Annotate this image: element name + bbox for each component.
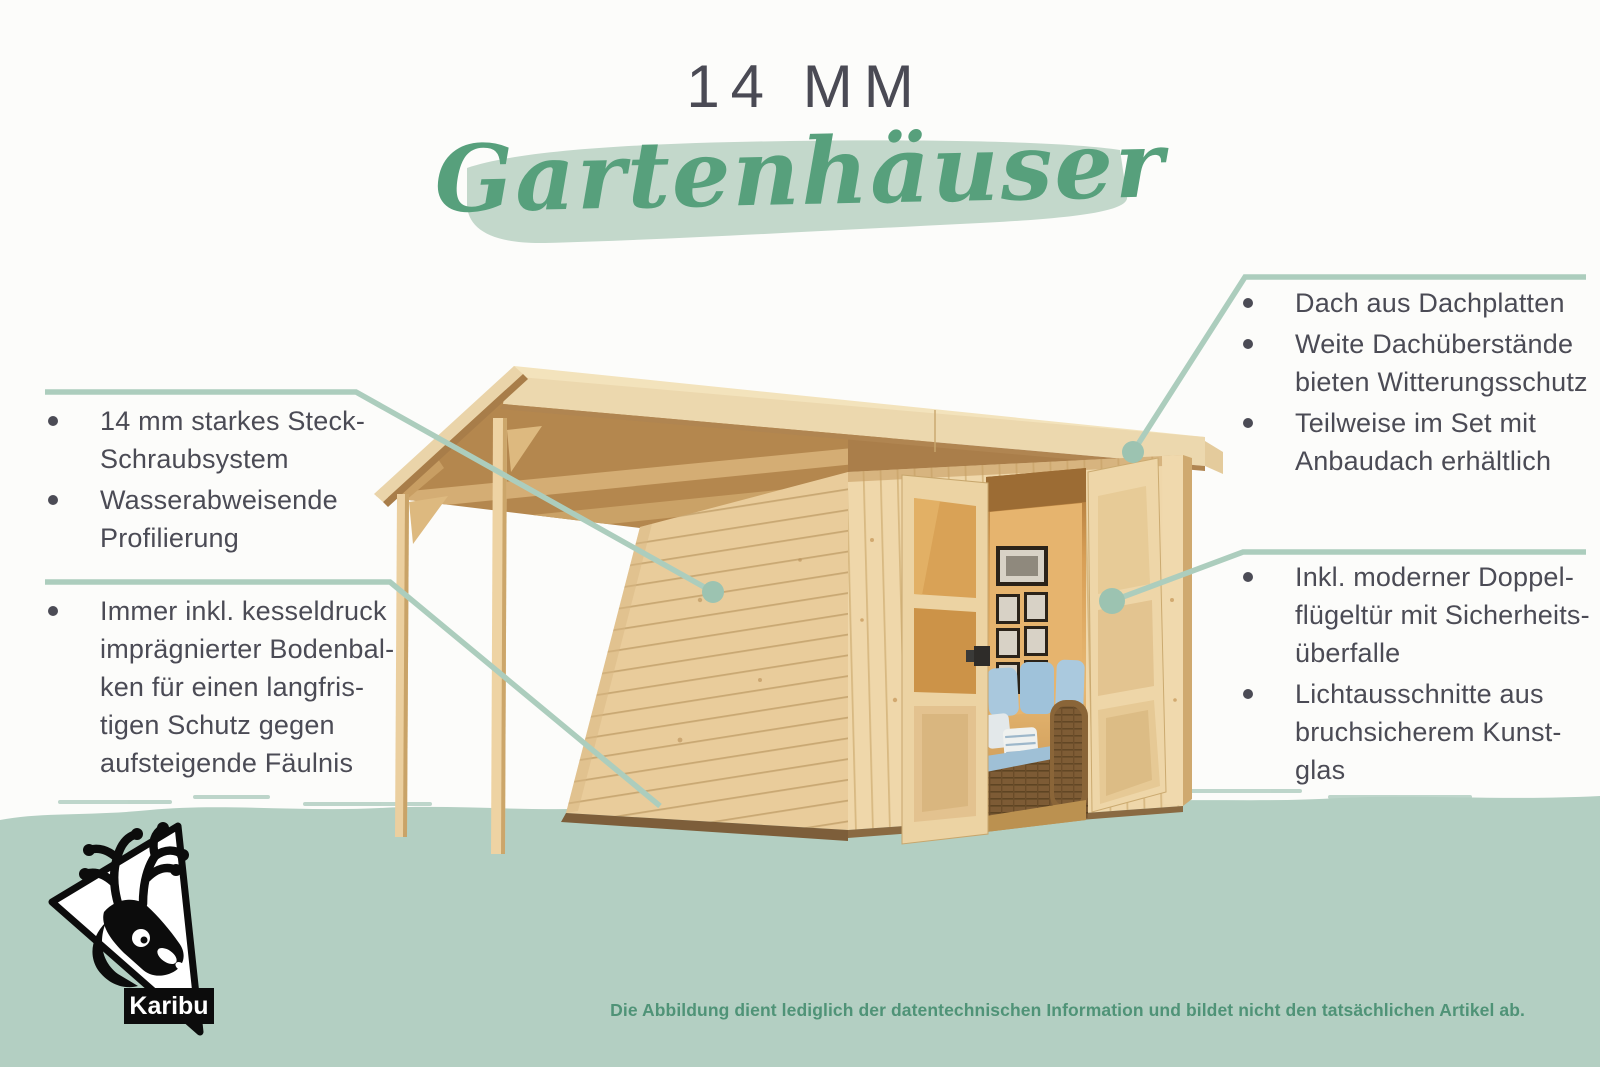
callout-right-top: Dach aus Dachplatten Weite Dachüberständ…	[1243, 284, 1588, 483]
callout-dot-wall	[702, 581, 724, 603]
bullet-dot	[48, 606, 58, 616]
bullet-dot	[1243, 572, 1253, 582]
bullet-dot	[1243, 689, 1253, 699]
feature-item: Wasserabweisende Profilierung	[48, 481, 365, 557]
feature-item: Inkl. moderner Doppel- flügeltür mit Sic…	[1243, 558, 1590, 672]
feature-item: Weite Dachüberstände bieten Witterungssc…	[1243, 325, 1588, 401]
disclaimer-text: Die Abbildung dient lediglich der datent…	[610, 1000, 1525, 1021]
bullet-dot	[1243, 298, 1253, 308]
bullet-dot	[1243, 339, 1253, 349]
feature-item: Lichtausschnitte aus bruchsicherem Kunst…	[1243, 675, 1590, 789]
feature-text: Dach aus Dachplatten	[1295, 284, 1565, 322]
feature-item: Teilweise im Set mit Anbaudach erhältlic…	[1243, 404, 1588, 480]
callout-left-bottom: Immer inkl. kesseldruck imprägnierter Bo…	[48, 592, 394, 785]
feature-text: Teilweise im Set mit Anbaudach erhältlic…	[1295, 404, 1551, 480]
infographic-page: 14 MM Gartenhäuser 14 mm starkes Steck- …	[0, 0, 1600, 1067]
feature-item: Dach aus Dachplatten	[1243, 284, 1588, 322]
bullet-dot	[48, 495, 58, 505]
callout-right-bottom: Inkl. moderner Doppel- flügeltür mit Sic…	[1243, 558, 1590, 792]
feature-text: Immer inkl. kesseldruck imprägnierter Bo…	[100, 592, 394, 782]
feature-text: Inkl. moderner Doppel- flügeltür mit Sic…	[1295, 558, 1590, 672]
bullet-dot	[48, 416, 58, 426]
karibu-logo: Karibu	[44, 810, 259, 1045]
feature-item: Immer inkl. kesseldruck imprägnierter Bo…	[48, 592, 394, 782]
feature-text: 14 mm starkes Steck- Schraubsystem	[100, 402, 365, 478]
bullet-dot	[1243, 418, 1253, 428]
feature-text: Wasserabweisende Profilierung	[100, 481, 338, 557]
callout-left-top: 14 mm starkes Steck- Schraubsystem Wasse…	[48, 402, 365, 560]
brand-label: Karibu	[129, 992, 208, 1020]
feature-text: Lichtausschnitte aus bruchsicherem Kunst…	[1295, 675, 1562, 789]
feature-item: 14 mm starkes Steck- Schraubsystem	[48, 402, 365, 478]
feature-text: Weite Dachüberstände bieten Witterungssc…	[1295, 325, 1588, 401]
callout-dot-door	[1099, 588, 1125, 614]
callout-dot-roof	[1122, 441, 1144, 463]
